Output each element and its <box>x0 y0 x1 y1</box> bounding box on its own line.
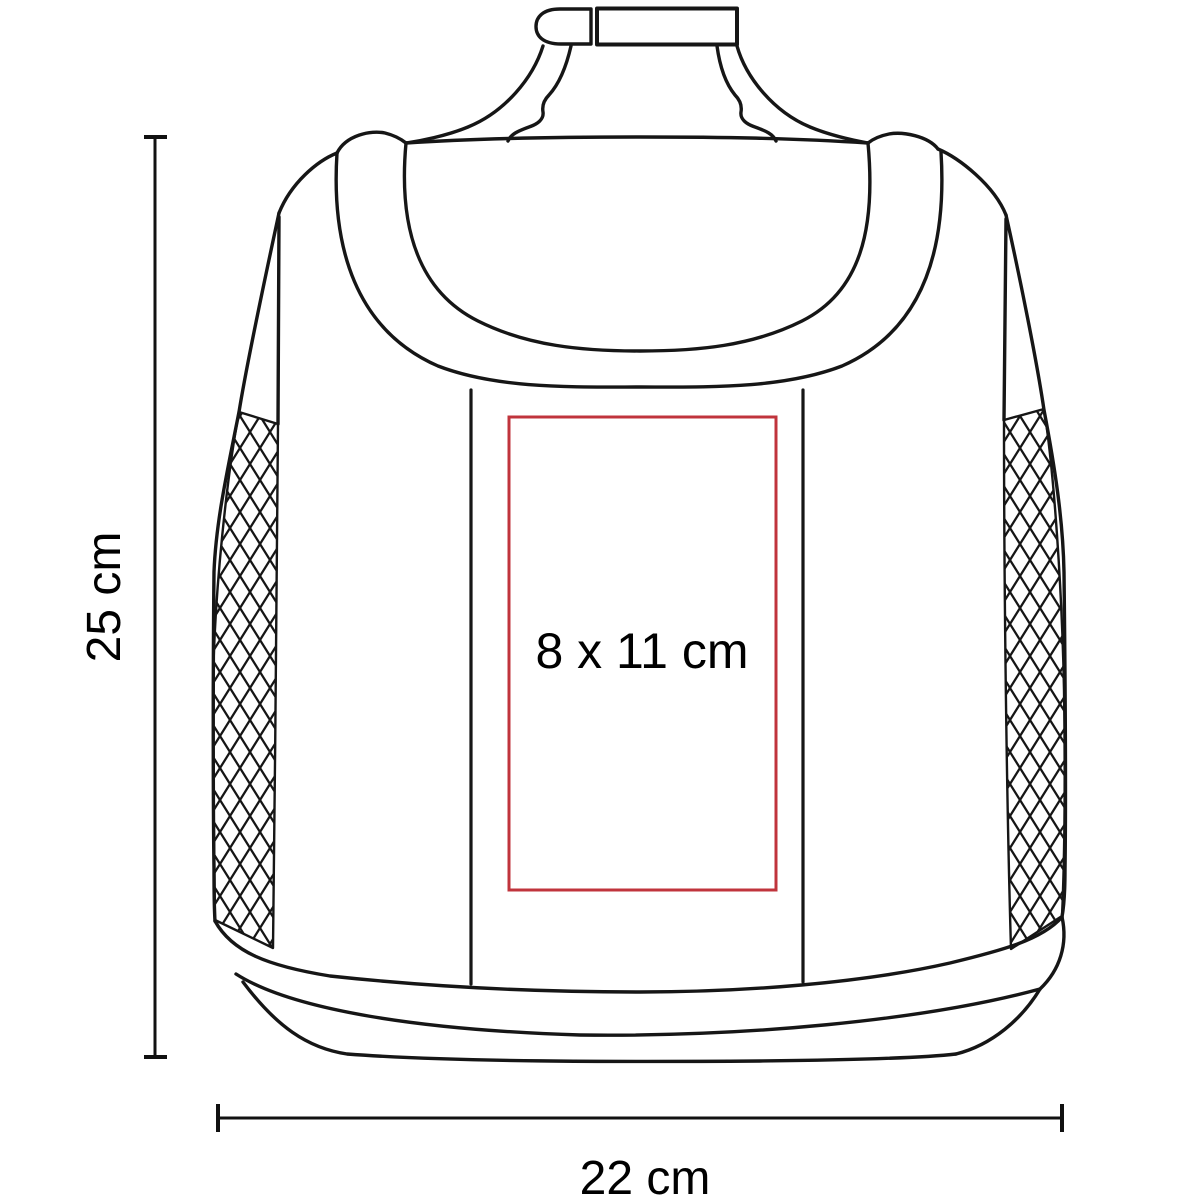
shoulder-left <box>279 153 337 213</box>
clip-neck-left-inner <box>508 46 571 141</box>
print-area-label: 8 x 11 cm <box>535 623 748 679</box>
handle-tip-left <box>337 132 406 153</box>
clip-right-piece <box>597 9 737 45</box>
base <box>215 917 1064 1061</box>
diagram-canvas: 8 x 11 cm 25 cm 22 cm <box>0 0 1200 1200</box>
print-area: 8 x 11 cm <box>509 417 776 890</box>
handle-tip-right <box>868 133 938 149</box>
top-clip <box>406 9 868 144</box>
width-dimension <box>218 1104 1062 1132</box>
clip-left-piece <box>536 9 591 44</box>
handle <box>336 132 942 387</box>
side-seam-right <box>1004 219 1006 420</box>
side-seam-left <box>278 217 279 424</box>
clip-neck-right-inner <box>717 46 776 141</box>
shoulder-right <box>938 149 1006 215</box>
height-dimension-label: 25 cm <box>78 532 131 663</box>
bag-outline <box>213 9 1065 1062</box>
width-dimension-label: 22 cm <box>580 1152 711 1200</box>
height-dimension <box>144 137 167 1057</box>
base-middle-curve <box>236 974 1040 1035</box>
bag-top-edge <box>406 137 868 143</box>
bag-print-area-diagram: 8 x 11 cm 25 cm 22 cm <box>0 0 1200 1200</box>
base-top-curve <box>215 917 1062 992</box>
handle-inner-curve <box>404 143 870 351</box>
